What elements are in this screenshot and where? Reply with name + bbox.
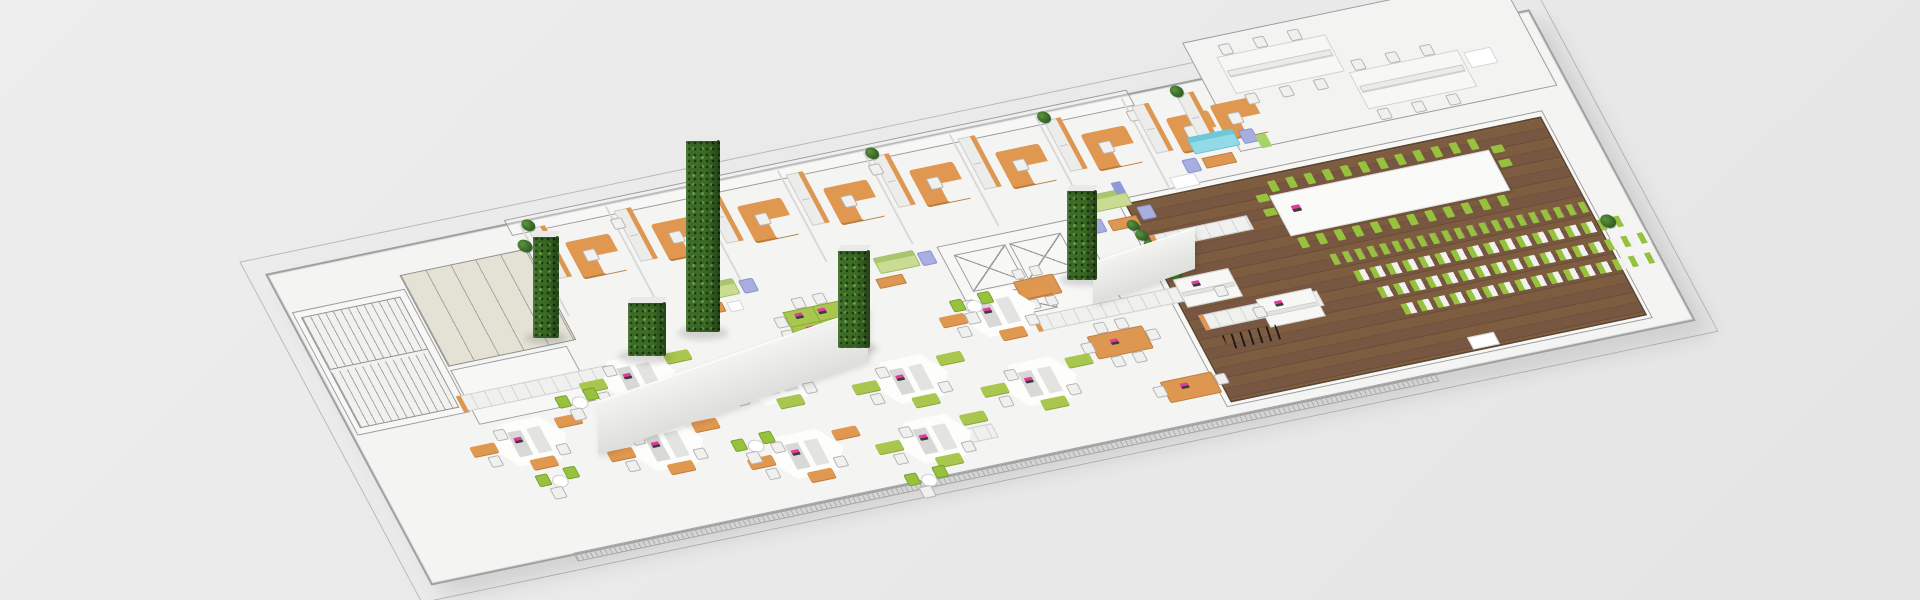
isometric-floor-plane	[265, 10, 1690, 582]
tub-chair-green	[948, 299, 967, 313]
tub-chair-white	[964, 311, 983, 325]
tub-chair-green	[903, 472, 922, 486]
pod-wing-desk	[831, 425, 861, 440]
pod-wing-desk	[1022, 283, 1052, 298]
pod-wing-desk	[1064, 353, 1094, 368]
task-chair	[765, 467, 782, 480]
plant-wall-pillar	[838, 250, 870, 348]
tub-chair-white	[569, 407, 588, 421]
tub-chair-green	[730, 438, 749, 452]
tub-chair-white	[549, 486, 568, 500]
task-chair	[956, 325, 973, 338]
tub-chair-green	[534, 473, 553, 487]
task-chair	[869, 393, 886, 406]
tub-chair-white	[918, 485, 937, 499]
task-chair	[624, 460, 641, 473]
plant-wall-pillar	[686, 140, 720, 332]
pod-wing-desk	[959, 410, 989, 425]
task-chair	[892, 452, 909, 465]
plant-wall-pillar	[1067, 190, 1097, 280]
floorplan-render-stage	[0, 0, 1920, 600]
plant-wall-pillar	[628, 302, 666, 356]
tub-chair-green	[554, 395, 573, 409]
plant-wall-pillar	[533, 236, 559, 338]
pod-wing-desk	[935, 351, 965, 366]
task-chair	[998, 395, 1015, 408]
task-chair	[487, 455, 504, 468]
tub-chair-white	[745, 451, 764, 465]
